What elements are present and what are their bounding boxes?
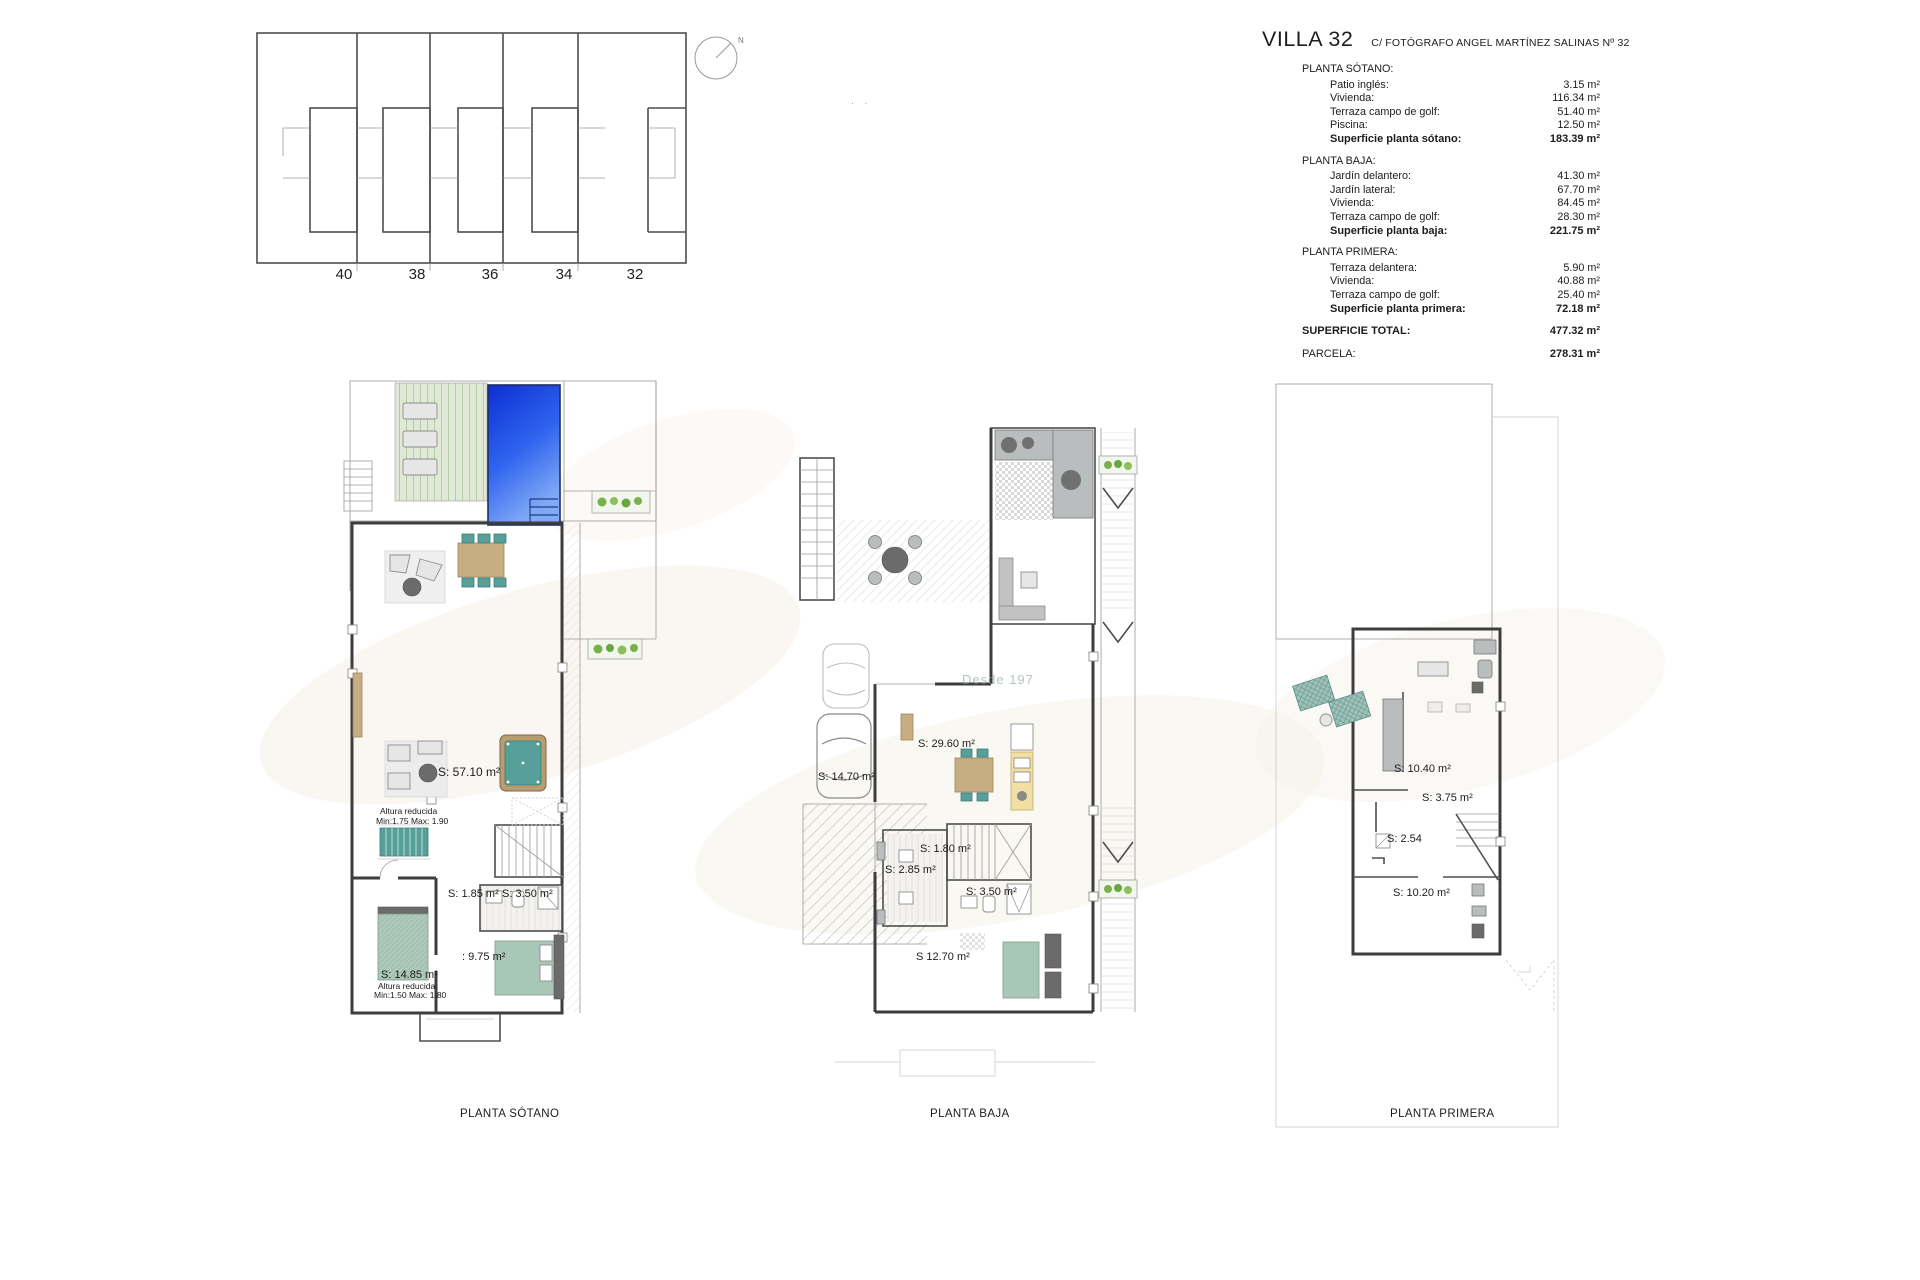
sotano-floor-plan-drawing	[340, 373, 670, 1048]
area-row-label: Terraza delantera:	[1330, 262, 1417, 276]
area-row-value: 12.50 m²	[1557, 119, 1600, 133]
section-heading: PLANTA SÓTANO:	[1302, 63, 1600, 77]
area-label: S: 2.54	[1387, 833, 1422, 845]
parcela-value: 278.31 m²	[1550, 348, 1600, 362]
area-label: S: 1.85 m²	[448, 888, 499, 900]
area-total-value: 221.75 m²	[1550, 225, 1600, 239]
area-label: S: 10.40 m²	[1394, 763, 1451, 775]
note-label: Min:1.75 Max: 1.90	[376, 816, 448, 826]
compass-north-label: N	[738, 36, 744, 45]
lot-number-32: 32	[618, 266, 652, 283]
area-total-value: 183.39 m²	[1550, 133, 1600, 147]
area-row: Jardín lateral:67.70 m²	[1302, 184, 1600, 198]
area-label: S: 3.75 m²	[1422, 792, 1473, 804]
area-row: Vivienda:40.88 m²	[1302, 275, 1600, 289]
area-row-value: 41.30 m²	[1557, 170, 1600, 184]
area-label: : 9.75 m²	[462, 951, 505, 963]
area-label: S: 57.10 m²	[438, 765, 500, 779]
area-label: S: 14.85 m²	[381, 969, 438, 981]
area-row-value: 67.70 m²	[1557, 184, 1600, 198]
plan-sheet: 40 38 36 34 32 N · · VILLA 32 C/ FOTÓGRA…	[0, 0, 1920, 1280]
stray-marks: · ·	[851, 98, 872, 108]
area-label: S: 10.20 m²	[1393, 887, 1450, 899]
area-row-value: 40.88 m²	[1557, 275, 1600, 289]
area-total-label: Superficie planta baja:	[1330, 225, 1447, 239]
area-label: S: 14.70 m²	[818, 771, 875, 783]
page-title: VILLA 32	[1262, 27, 1353, 52]
lot-number-40: 40	[327, 266, 361, 283]
baja-caption: PLANTA BAJA	[930, 1108, 1010, 1120]
area-row-label: Terraza campo de golf:	[1330, 289, 1440, 303]
area-row: Piscina:12.50 m²	[1302, 119, 1600, 133]
area-row-label: Vivienda:	[1330, 275, 1374, 289]
section-heading: PLANTA PRIMERA:	[1302, 246, 1600, 260]
area-row: Terraza campo de golf:51.40 m²	[1302, 106, 1600, 120]
area-section-sotano: PLANTA SÓTANO: Patio inglés:3.15 m² Vivi…	[1302, 63, 1600, 147]
area-row: Terraza delantera:5.90 m²	[1302, 262, 1600, 276]
area-row-value: 5.90 m²	[1563, 262, 1600, 276]
area-label: S 12.70 m²	[916, 951, 970, 963]
note-label: Altura reducida	[380, 806, 437, 816]
note-label: Min:1.50 Max: 1.80	[374, 990, 446, 1000]
area-row-label: Jardín lateral:	[1330, 184, 1395, 198]
area-row-label: Vivienda:	[1330, 197, 1374, 211]
area-row-value: 51.40 m²	[1557, 106, 1600, 120]
area-row: Jardín delantero:41.30 m²	[1302, 170, 1600, 184]
area-row-label: Piscina:	[1330, 119, 1368, 133]
area-table: PLANTA SÓTANO: Patio inglés:3.15 m² Vivi…	[1302, 63, 1600, 361]
area-row-label: Terraza campo de golf:	[1330, 106, 1440, 120]
area-total-value: 72.18 m²	[1556, 303, 1600, 317]
area-row-value: 25.40 m²	[1557, 289, 1600, 303]
parcela-row: PARCELA:278.31 m²	[1302, 348, 1600, 362]
primera-caption: PLANTA PRIMERA	[1390, 1108, 1494, 1120]
grand-total-value: 477.32 m²	[1550, 325, 1600, 339]
area-row: Terraza campo de golf:28.30 m²	[1302, 211, 1600, 225]
area-row: Terraza campo de golf:25.40 m²	[1302, 289, 1600, 303]
grand-total-label: SUPERFICIE TOTAL:	[1302, 325, 1410, 339]
lot-number-36: 36	[473, 266, 507, 283]
superficie-total-row: SUPERFICIE TOTAL:477.32 m²	[1302, 325, 1600, 339]
area-row: Vivienda:84.45 m²	[1302, 197, 1600, 211]
area-row-label: Terraza campo de golf:	[1330, 211, 1440, 225]
area-row: Patio inglés:3.15 m²	[1302, 79, 1600, 93]
area-label: S: 29.60 m²	[918, 738, 975, 750]
baja-floor-plan-drawing	[795, 372, 1140, 1084]
area-label: S: 3.50 m²	[502, 888, 553, 900]
area-section-baja: PLANTA BAJA: Jardín delantero:41.30 m² J…	[1302, 155, 1600, 239]
area-section-primera: PLANTA PRIMERA: Terraza delantera:5.90 m…	[1302, 246, 1600, 316]
area-label: S: 2.85 m²	[885, 864, 936, 876]
area-row-value: 116.34 m²	[1552, 92, 1600, 106]
section-heading: PLANTA BAJA:	[1302, 155, 1600, 169]
lot-number-38: 38	[400, 266, 434, 283]
area-label: S: 1.80 m²	[920, 843, 971, 855]
area-row-value: 28.30 m²	[1557, 211, 1600, 225]
area-row-value: 84.45 m²	[1557, 197, 1600, 211]
area-row-label: Patio inglés:	[1330, 79, 1389, 93]
area-total-row: Superficie planta sótano:183.39 m²	[1302, 133, 1600, 147]
area-total-label: Superficie planta primera:	[1330, 303, 1466, 317]
area-total-row: Superficie planta primera:72.18 m²	[1302, 303, 1600, 317]
address: C/ FOTÓGRAFO ANGEL MARTÍNEZ SALINAS Nº 3…	[1371, 37, 1629, 49]
area-total-label: Superficie planta sótano:	[1330, 133, 1461, 147]
site-plan-drawing	[250, 28, 750, 278]
lot-number-34: 34	[547, 266, 581, 283]
primera-floor-plan-drawing	[1268, 372, 1568, 1134]
parcela-label: PARCELA:	[1302, 348, 1356, 362]
sotano-caption: PLANTA SÓTANO	[460, 1108, 559, 1120]
watermark-text: Desde 197	[962, 672, 1034, 687]
area-row: Vivienda:116.34 m²	[1302, 92, 1600, 106]
area-label: S: 3.50 m²	[966, 886, 1017, 898]
area-row-value: 3.15 m²	[1563, 79, 1600, 93]
area-total-row: Superficie planta baja:221.75 m²	[1302, 225, 1600, 239]
area-row-label: Jardín delantero:	[1330, 170, 1411, 184]
area-row-label: Vivienda:	[1330, 92, 1374, 106]
